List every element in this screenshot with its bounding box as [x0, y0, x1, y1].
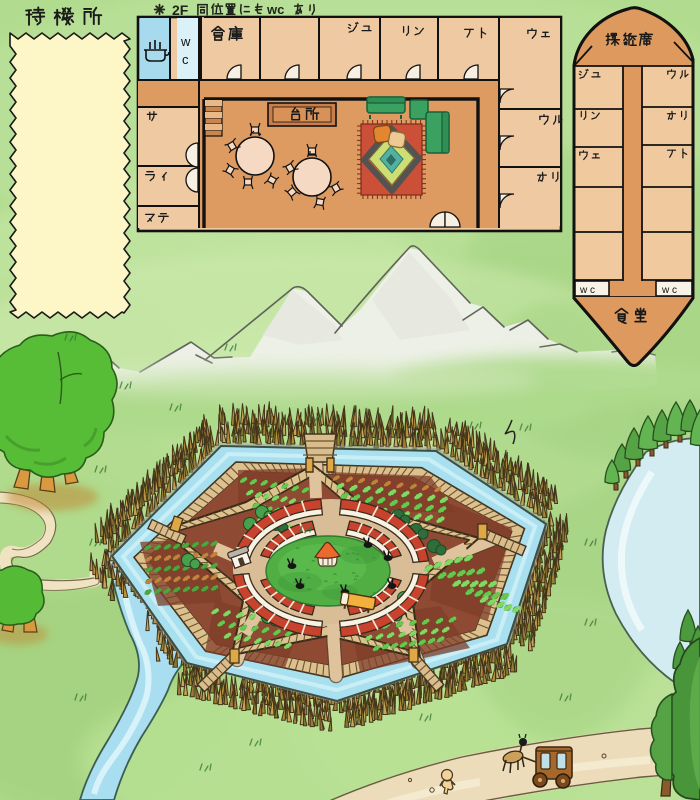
- svg-text:w c: w c: [661, 285, 677, 296]
- svg-text:wc: wc: [266, 2, 284, 17]
- svg-text:2F: 2F: [172, 2, 189, 18]
- svg-text:c: c: [182, 52, 189, 67]
- svg-text:w: w: [180, 34, 191, 49]
- svg-text:w c: w c: [579, 285, 595, 296]
